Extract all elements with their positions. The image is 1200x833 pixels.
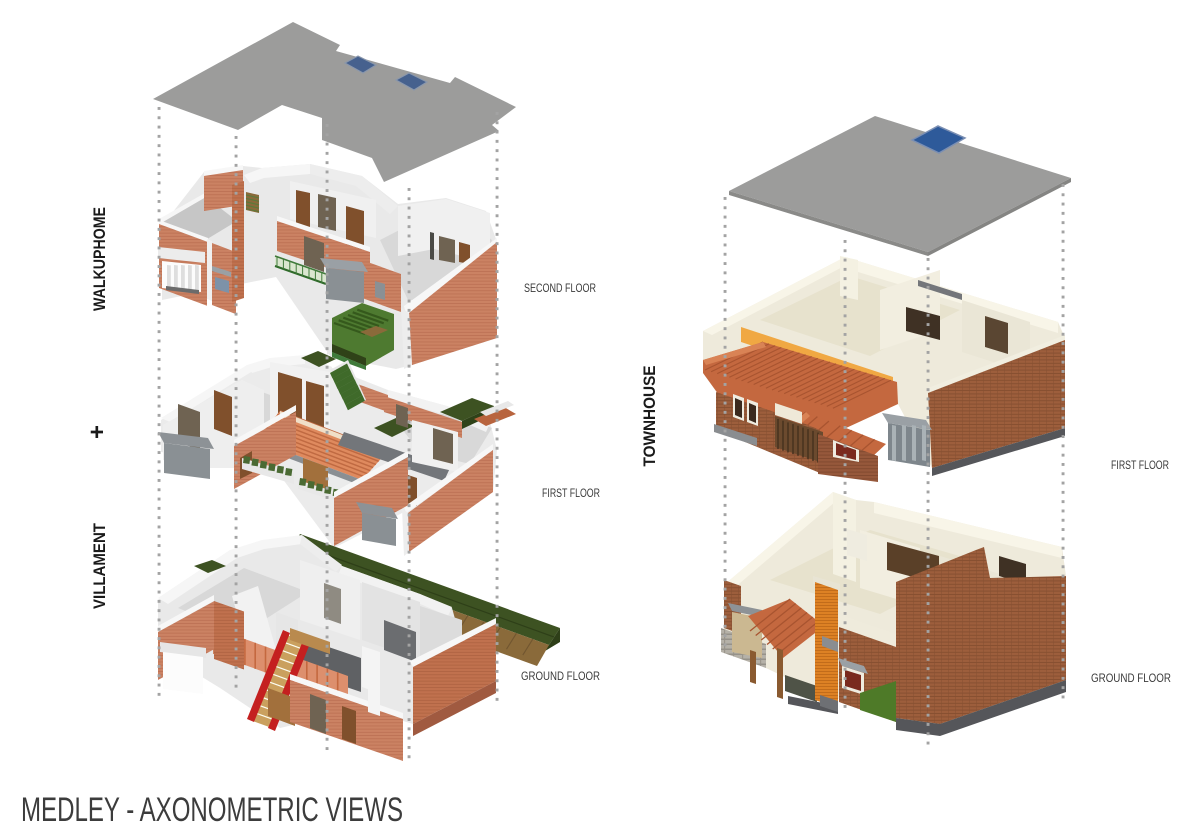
svg-text:+: + [84, 425, 111, 439]
svg-text:MEDLEY - AXONOMETRIC VIEWS: MEDLEY - AXONOMETRIC VIEWS [21, 791, 403, 829]
svg-text:GROUND FLOOR: GROUND FLOOR [1091, 671, 1171, 685]
svg-text:TOWNHOUSE: TOWNHOUSE [640, 366, 659, 467]
svg-text:FIRST FLOOR: FIRST FLOOR [542, 486, 600, 500]
svg-text:SECOND FLOOR: SECOND FLOOR [524, 281, 596, 295]
svg-text:WALKUPHOME: WALKUPHOME [90, 207, 109, 311]
svg-text:VILLAMENT: VILLAMENT [90, 522, 109, 609]
svg-text:FIRST FLOOR: FIRST FLOOR [1111, 458, 1169, 472]
svg-text:GROUND FLOOR: GROUND FLOOR [521, 669, 600, 683]
